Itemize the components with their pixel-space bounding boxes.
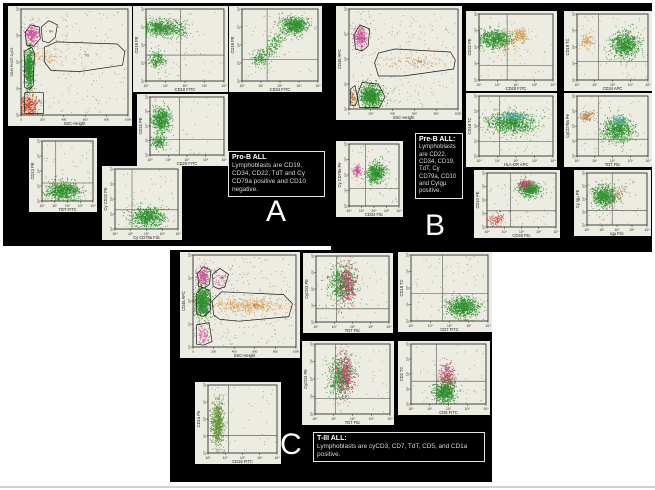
svg-text:101: 101 (15, 85, 19, 90)
scatter-plot-svg: 100101102103104100101102103104CD10 FITCC… (133, 6, 228, 92)
svg-text:104: 104 (91, 204, 97, 208)
scatter-plot-svg: 100101102103104100101102103104TDT FITCCD… (29, 138, 97, 212)
scatter-plot-svg: 100101102103104100101102103104CD20 FITCC… (137, 94, 228, 166)
gate-label: R4 (49, 29, 53, 33)
scatter-plot-svg: 100101102103104100101102103104Igµ FitcCy… (574, 170, 651, 236)
svg-text:103: 103 (236, 24, 240, 29)
svg-text:101: 101 (36, 183, 40, 188)
y-axis-label: CyCD3 PE (303, 369, 308, 389)
svg-text:102: 102 (36, 168, 40, 173)
svg-text:103: 103 (15, 32, 19, 37)
panel-letter-b: B (425, 209, 445, 243)
svg-text:103: 103 (36, 153, 40, 158)
svg-text:104: 104 (316, 84, 322, 88)
plot-b-igu-cyigu: 100101102103104100101102103104Igµ FitcCy… (574, 170, 651, 236)
svg-text:100: 100 (140, 78, 144, 83)
bottom-divider (0, 486, 655, 488)
y-axis-label: CyCD3 PE (304, 279, 309, 299)
y-axis-label: Cy CD22 PE (103, 187, 108, 210)
y-axis-label: CD45 PerCP-Cy5.5 (10, 47, 14, 76)
svg-text:100: 100 (240, 84, 246, 88)
scatter-plot-svg: 100101102103104100101102103104TDT FitcCy… (564, 93, 652, 167)
x-axis-label: Cy CD79a Fitc (133, 235, 160, 240)
plot-c-main: 02004006008001000100101102103104R3R4R2R6… (180, 252, 300, 358)
svg-text:101: 101 (166, 158, 172, 162)
caption-title: Pre-B ALL: (419, 136, 459, 144)
plot-b-cd38-cd10: 100101102103104100101102103104CD38 FitcC… (474, 170, 560, 238)
svg-text:104: 104 (222, 158, 228, 162)
caption-title: T-III ALL: (317, 435, 481, 443)
caption-title: Pro-B ALL (232, 154, 321, 162)
y-axis-label: Cy Igµ PE (575, 189, 580, 208)
svg-text:100: 100 (144, 84, 150, 88)
svg-text:101: 101 (144, 137, 148, 142)
gate-label: R2 (206, 310, 210, 314)
svg-text:101: 101 (236, 60, 240, 65)
svg-text:100: 100 (36, 198, 40, 203)
scatter-plot-svg: 100101102103104100101102103104CD5 FITCCD… (398, 341, 490, 415)
y-axis-label: CD19 TC (399, 279, 404, 296)
svg-text:104: 104 (140, 6, 144, 11)
svg-text:1000: 1000 (125, 118, 132, 122)
svg-text:200: 200 (40, 118, 45, 122)
plot-b-cd20-cd22: 100101102103104100101102103104CD20 FITCC… (466, 11, 557, 91)
caption-body: Lymphoblasts are CD22, CD34, CD19, TdT, … (419, 144, 459, 195)
caption-body: Lymphoblasts are cyCD3, CD7, TdT, CD5, a… (317, 443, 481, 459)
scatter-plot-svg: 100101102103104100101102103104Cy CD79a F… (102, 166, 182, 240)
svg-text:100: 100 (236, 78, 240, 83)
plot-c-cd7-cd19: 100101102103104100101102103104CD7 FITCCD… (398, 252, 492, 332)
scatter-plot-svg: 100101102103104100101102103104HLA-DR APC… (466, 93, 557, 167)
scatter-plot-svg: 02004006008001000100101102103104R2R3R4SS… (336, 6, 462, 120)
gate-label: R6 (253, 304, 257, 308)
gate-label: R1 (38, 99, 42, 103)
plot-b-tdt-cycd79a: 100101102103104100101102103104TDT FitcCy… (564, 93, 652, 167)
svg-text:102: 102 (15, 59, 19, 64)
svg-text:103: 103 (202, 84, 208, 88)
panel-b-pre-b-all: Pre-B ALL: Lymphoblasts are CD22, CD34, … (331, 3, 652, 252)
svg-text:101: 101 (140, 60, 144, 65)
y-axis-label: CD13 PE (30, 162, 35, 179)
scatter-plot-svg: 100101102103104100101102103104CD34 FITCC… (229, 6, 322, 92)
x-axis-label: CD20 FITC (506, 86, 527, 91)
svg-text:103: 103 (144, 108, 148, 113)
gate-label: R4 (418, 60, 422, 64)
plot-c-tdt-cycd3-1: 100101102103104100101102103104TDT FitcCy… (303, 253, 393, 333)
svg-text:100: 100 (15, 112, 19, 117)
scatter-plot-svg: 100101102103104100101102103104CD7 FITCCD… (398, 252, 492, 332)
panel-a-pro-b-all: Pro-B ALL Lymphoblasts are CD19, CD34, C… (3, 3, 331, 246)
y-axis-label: CD22 PE (138, 117, 143, 134)
svg-text:104: 104 (36, 138, 40, 143)
scatter-plot-svg: 02004006008001000100101102103104R4R5R1SS… (8, 6, 132, 126)
x-axis-label: CD38 Fitc (512, 233, 530, 238)
svg-text:103: 103 (78, 204, 84, 208)
gate-label: R3 (372, 94, 376, 98)
scatter-plot-svg: 100101102103104100101102103104CD38 FitcC… (474, 170, 560, 238)
svg-text:100: 100 (148, 158, 154, 162)
x-axis-label: CD15 FITC (232, 459, 253, 464)
svg-text:101: 101 (163, 84, 169, 88)
x-axis-label: SSC-Height (393, 115, 415, 120)
gate-label: R4 (220, 276, 224, 280)
x-axis-label: TDT Fitc (605, 162, 621, 167)
svg-text:102: 102 (144, 123, 148, 128)
plot-a-tdt-cd13: 100101102103104100101102103104TDT FITCCD… (29, 138, 97, 212)
gate-label: R7 (204, 332, 208, 336)
svg-text:100: 100 (144, 152, 148, 157)
svg-text:800: 800 (104, 118, 109, 122)
plot-b-hladr-cd19: 100101102103104100101102103104HLA-DR APC… (466, 93, 557, 167)
y-axis-label: CD19 TC (565, 38, 570, 55)
plot-c-tdt-cycd3-2: 100101102103104100101102103104TDT FitcCy… (302, 341, 394, 425)
x-axis-label: TDT Fitc (345, 328, 361, 333)
svg-text:103: 103 (297, 84, 303, 88)
y-axis-label: CyCD79a Pe (565, 113, 570, 138)
x-axis-label: Igµ Fitc (610, 231, 624, 236)
plot-c-cd15-cd1a: 100101102103104100101102103104CD15 FITCC… (195, 382, 281, 464)
plot-a-cd20-cd22: 100101102103104100101102103104CD20 FITCC… (137, 94, 228, 166)
scatter-plot-svg: 100101102103104100101102103104CD15 FITCC… (195, 382, 281, 464)
x-axis-label: CD34 FITC (270, 87, 291, 92)
plot-b-cd34-cycd79a: 100101102103104100101102103104CD34 FitcC… (336, 141, 403, 217)
y-axis-label: CD19 PE (134, 36, 139, 53)
gate-label: R5 (85, 54, 89, 58)
svg-text:103: 103 (140, 24, 144, 29)
svg-text:102: 102 (140, 42, 144, 47)
svg-text:0: 0 (20, 118, 22, 122)
gate-label: R2 (362, 37, 366, 41)
y-axis-label: CD19 PE (230, 36, 235, 53)
caption-pre-b-all: Pre-B ALL: Lymphoblasts are CD22, CD34, … (415, 133, 463, 199)
flow-cytometry-figure: Pro-B ALL Lymphoblasts are CD19, CD34, C… (0, 0, 655, 490)
y-axis-label: CD19 TC (467, 117, 472, 134)
y-axis-label: Cy CD79a Pe (337, 162, 342, 188)
caption-body: Lymphoblasts are CD19, CD34, CD22, TdT a… (232, 162, 321, 193)
svg-text:104: 104 (15, 6, 19, 11)
caption-pro-b-all: Pro-B ALL Lymphoblasts are CD19, CD34, C… (228, 151, 325, 197)
x-axis-label: SSC-Height (234, 353, 256, 358)
x-axis-label: CD34 APC (603, 86, 623, 91)
x-axis-label: SSC-Height (64, 121, 86, 126)
svg-text:104: 104 (144, 94, 148, 99)
svg-text:104: 104 (222, 84, 228, 88)
x-axis-label: TDT Fitc (345, 420, 361, 425)
svg-text:102: 102 (236, 42, 240, 47)
plot-a-cycd79a-cycd22: 100101102103104100101102103104Cy CD79a F… (102, 166, 182, 240)
y-axis-label: CD1a Pe (196, 410, 201, 427)
plot-a-cd34-cd19: 100101102103104100101102103104CD34 FITCC… (229, 6, 322, 92)
plot-c-cd5-cd3: 100101102103104100101102103104CD5 FITCCD… (398, 341, 490, 415)
x-axis-label: TDT FITC (58, 207, 76, 212)
panel-c-t-iii-all: T-III ALL: Lymphoblasts are cyCD3, CD7, … (170, 250, 492, 482)
svg-text:104: 104 (236, 6, 240, 11)
plot-a-cd10-cd19: 100101102103104100101102103104CD10 FITCC… (133, 6, 228, 92)
scatter-plot-svg: 100101102103104100101102103104TDT FitcCy… (302, 341, 394, 425)
x-axis-label: HLA-DR APC (504, 162, 529, 167)
svg-text:100: 100 (40, 204, 46, 208)
x-axis-label: CD10 FITC (175, 87, 196, 92)
scatter-plot-svg: 100101102103104100101102103104CD20 FITCC… (466, 11, 557, 91)
scatter-plot-svg: 100101102103104100101102103104TDT FitcCy… (303, 253, 393, 333)
plot-b-main: 02004006008001000100101102103104R2R3R4SS… (336, 6, 462, 120)
svg-text:101: 101 (259, 84, 265, 88)
y-axis-label: CD3 TC (399, 367, 404, 382)
scatter-plot-svg: 100101102103104100101102103104CD34 FitcC… (336, 141, 403, 217)
x-axis-label: CD5 FITC (439, 410, 457, 415)
scatter-plot-svg: 02004006008001000100101102103104R3R4R2R6… (180, 252, 300, 358)
svg-text:101: 101 (52, 204, 58, 208)
svg-text:103: 103 (203, 158, 209, 162)
x-axis-label: CD34 Fitc (365, 212, 383, 217)
panel-letter-a: A (266, 195, 286, 229)
x-axis-label: CD7 FITC (440, 327, 458, 332)
y-axis-label: CD10 PE (475, 191, 480, 208)
panel-letter-c: C (280, 428, 302, 462)
y-axis-label: CD45 APC (337, 49, 342, 69)
caption-t-iii-all: T-III ALL: Lymphoblasts are cyCD3, CD7, … (313, 432, 485, 462)
scatter-plot-svg: 100101102103104100101102103104CD34 APCCD… (564, 11, 652, 91)
plot-b-cd34-cd19: 100101102103104100101102103104CD34 APCCD… (564, 11, 652, 91)
plot-a-main: 02004006008001000100101102103104R4R5R1SS… (8, 6, 132, 126)
y-axis-label: CD22 PE (467, 38, 472, 55)
gate-label: R3 (204, 274, 208, 278)
y-axis-label: CD45 APC (181, 291, 186, 311)
